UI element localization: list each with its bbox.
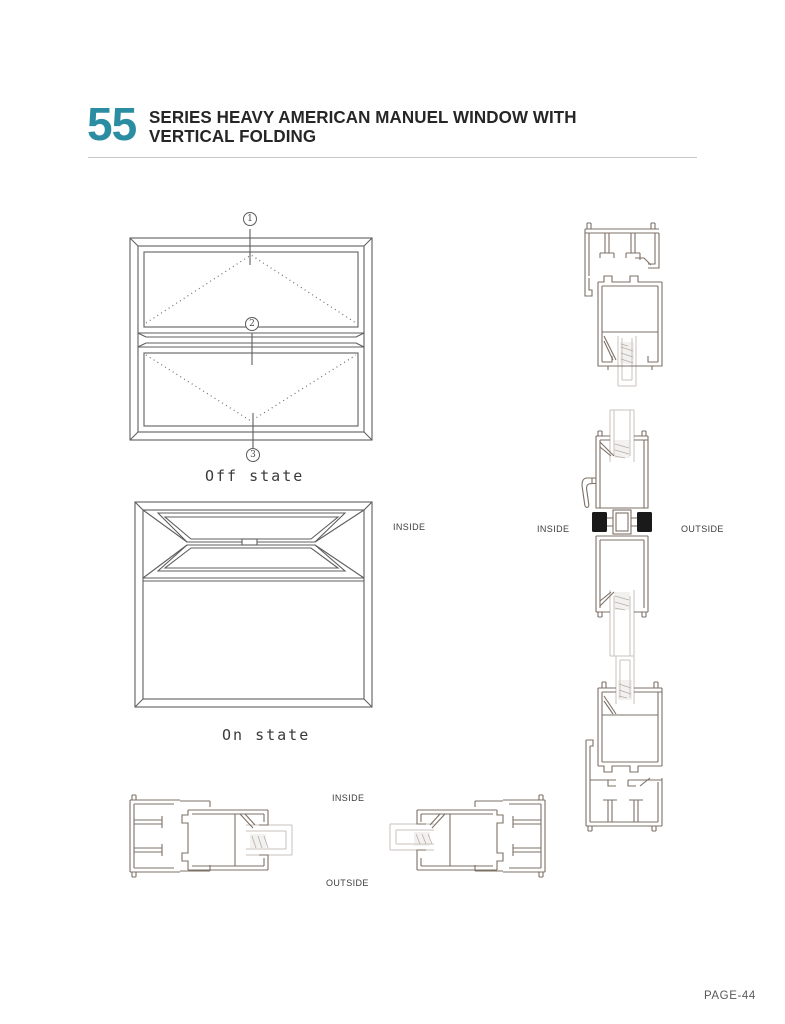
jamb-inside-label: INSIDE xyxy=(332,793,364,803)
glass-unit xyxy=(390,824,434,850)
header-divider xyxy=(88,157,697,158)
jamb-section-right-drawing xyxy=(388,788,553,880)
glass-unit xyxy=(616,656,634,704)
series-number: 55 xyxy=(87,101,136,147)
aluminium-profile-lines xyxy=(130,795,268,877)
open-window-lines xyxy=(135,502,372,707)
page-title-line2: VERTICAL FOLDING xyxy=(149,127,577,146)
sill-section-drawing xyxy=(578,648,668,833)
jamb-outside-label: OUTSIDE xyxy=(326,878,369,888)
page-number: PAGE-44 xyxy=(704,990,756,1002)
catalog-page: 55 SERIES HEAVY AMERICAN MANUEL WINDOW W… xyxy=(0,0,785,1024)
section-outside-label: OUTSIDE xyxy=(681,524,724,534)
head-section-drawing xyxy=(578,220,666,390)
glass-unit xyxy=(618,336,636,386)
window-handle xyxy=(582,478,596,507)
aluminium-profile-lines xyxy=(586,682,662,831)
on-state-label: On state xyxy=(222,726,310,744)
section-inside-label: INSIDE xyxy=(537,524,569,534)
lock-mechanism xyxy=(592,512,652,532)
jamb-section-left-drawing xyxy=(122,788,297,880)
glass-unit-top xyxy=(610,410,634,462)
off-state-elevation xyxy=(120,203,385,465)
page-title-line1: SERIES HEAVY AMERICAN MANUEL WINDOW WITH xyxy=(149,108,577,127)
aluminium-profile-lines xyxy=(417,795,545,877)
marker-1: 1 xyxy=(243,212,257,226)
marker-3: 3 xyxy=(246,448,260,462)
marker-2: 2 xyxy=(245,317,259,331)
glass-unit xyxy=(246,825,292,855)
meeting-rail-section-drawing xyxy=(580,406,664,664)
sash-handle xyxy=(242,539,257,545)
fold-direction-dotted-lines xyxy=(146,255,356,421)
off-state-label: Off state xyxy=(205,467,304,485)
on-state-elevation xyxy=(122,498,377,713)
elevation-inside-label: INSIDE xyxy=(393,522,425,532)
page-title: SERIES HEAVY AMERICAN MANUEL WINDOW WITH… xyxy=(149,108,577,145)
glass-unit-bottom xyxy=(610,590,634,656)
window-frame-lines xyxy=(130,229,372,448)
